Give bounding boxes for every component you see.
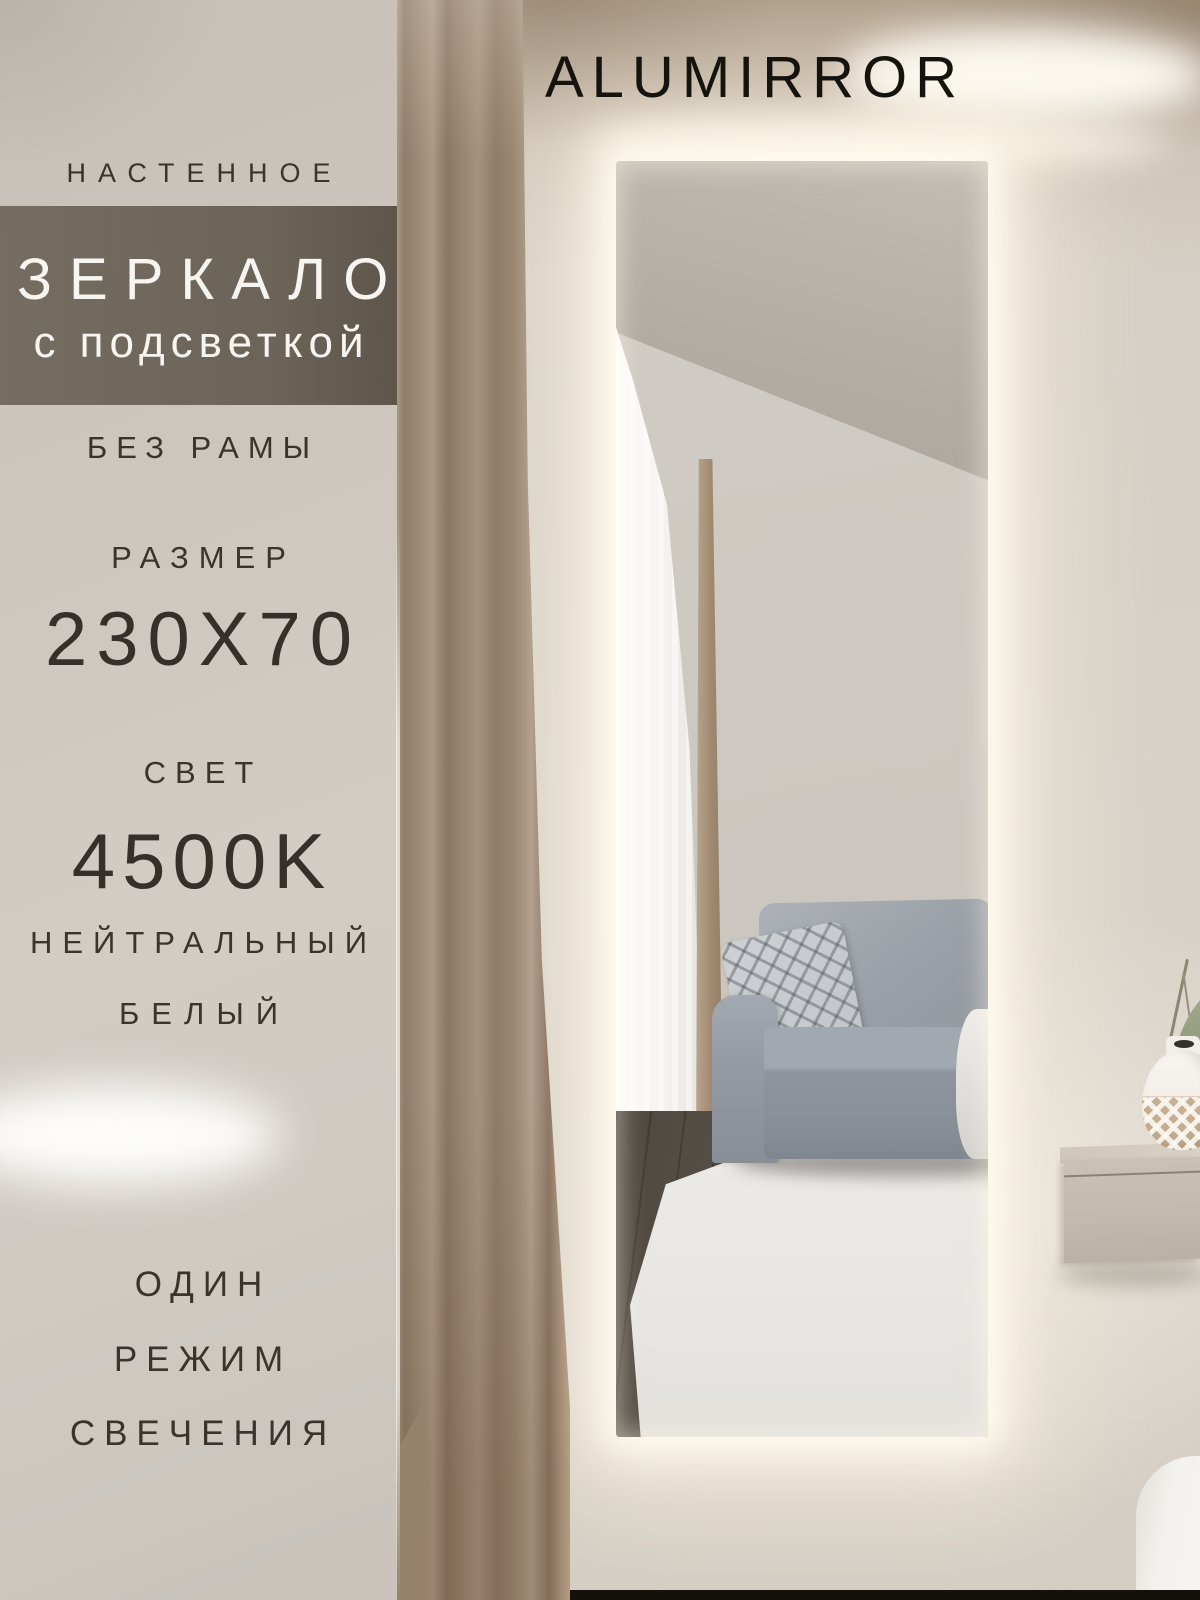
mirror bbox=[616, 161, 988, 1437]
vase-pattern bbox=[1142, 1097, 1200, 1150]
throw-blanket bbox=[956, 1009, 988, 1159]
mount-type-label: НАСТЕННОЕ bbox=[0, 158, 397, 189]
mode-line1: ОДИН bbox=[0, 1265, 397, 1305]
panel-edge-highlight bbox=[396, 520, 400, 1600]
light-label: СВЕТ bbox=[0, 755, 397, 791]
mode-line3: СВЕЧЕНИЯ bbox=[0, 1414, 397, 1454]
shelf-drawer-seam bbox=[1064, 1171, 1200, 1178]
light-temperature-value: 4500K bbox=[0, 816, 397, 907]
mode-line2: РЕЖИМ bbox=[0, 1340, 397, 1380]
vase-mouth bbox=[1174, 1040, 1194, 1048]
light-tone-line2: БЕЛЫЙ bbox=[0, 996, 397, 1032]
mirror-reflection-white-rug bbox=[630, 1143, 988, 1437]
product-subtitle: с подсветкой bbox=[0, 318, 397, 368]
brand-logo-text: ALUMIRROR bbox=[520, 44, 990, 111]
light-tone-line1: НЕЙТРАЛЬНЫЙ bbox=[0, 925, 397, 961]
sofa bbox=[714, 901, 988, 1181]
product-title: ЗЕРКАЛО bbox=[0, 246, 397, 313]
product-card: ALUMIRROR НАСТЕННОЕ ЗЕРКАЛО с подсветкой… bbox=[0, 0, 1200, 1600]
shelf-shadow bbox=[1058, 1262, 1200, 1286]
size-label: РАЗМЕР bbox=[0, 540, 397, 576]
panel-light-glare bbox=[0, 1085, 280, 1185]
frameless-label: БЕЗ РАМЫ bbox=[0, 430, 397, 466]
size-value: 230X70 bbox=[0, 596, 397, 683]
info-panel: НАСТЕННОЕ ЗЕРКАЛО с подсветкой БЕЗ РАМЫ … bbox=[0, 0, 397, 1600]
floating-shelf bbox=[1064, 1157, 1200, 1264]
sofa-seat-cushion bbox=[764, 1027, 988, 1159]
mirror-reflection-ceiling bbox=[616, 161, 988, 491]
title-band: ЗЕРКАЛО с подсветкой bbox=[0, 206, 397, 405]
